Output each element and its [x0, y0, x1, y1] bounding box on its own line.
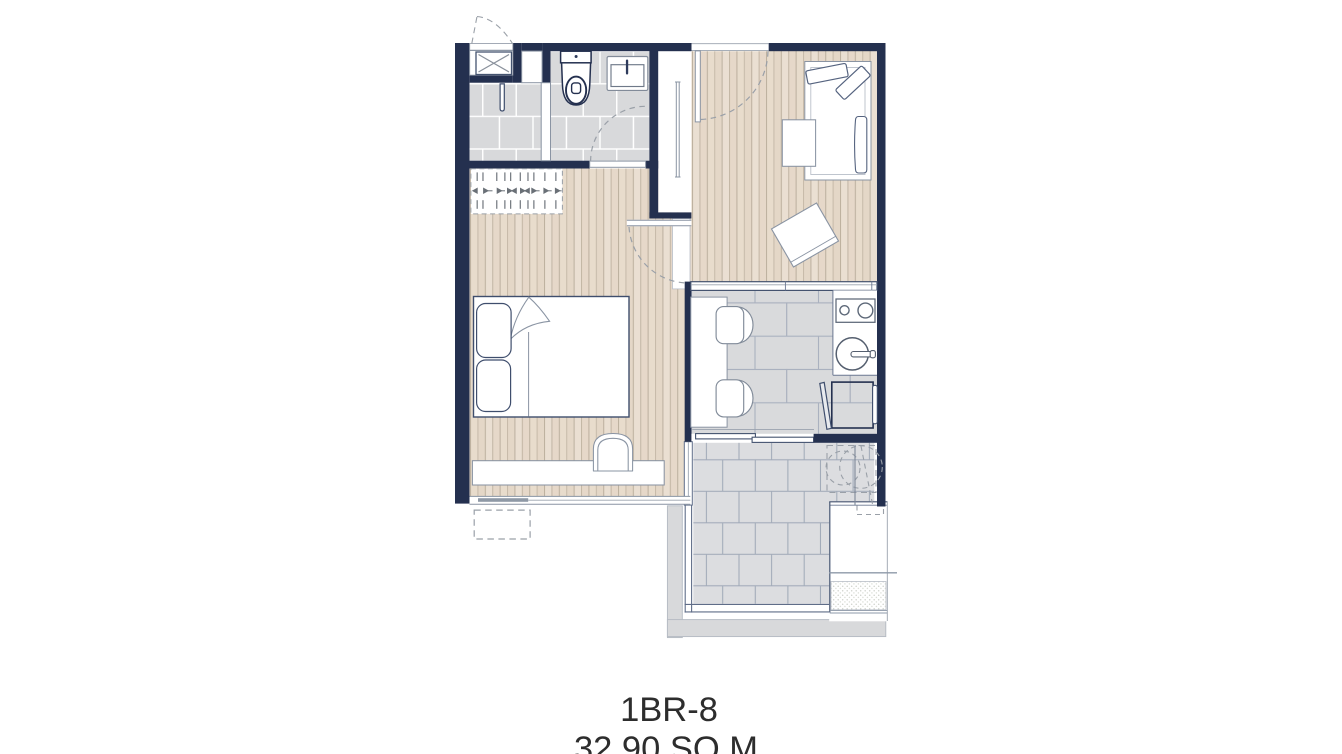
svg-text:1BR-8: 1BR-8: [620, 691, 718, 729]
svg-text:32.90 SQ.M: 32.90 SQ.M: [574, 730, 758, 754]
